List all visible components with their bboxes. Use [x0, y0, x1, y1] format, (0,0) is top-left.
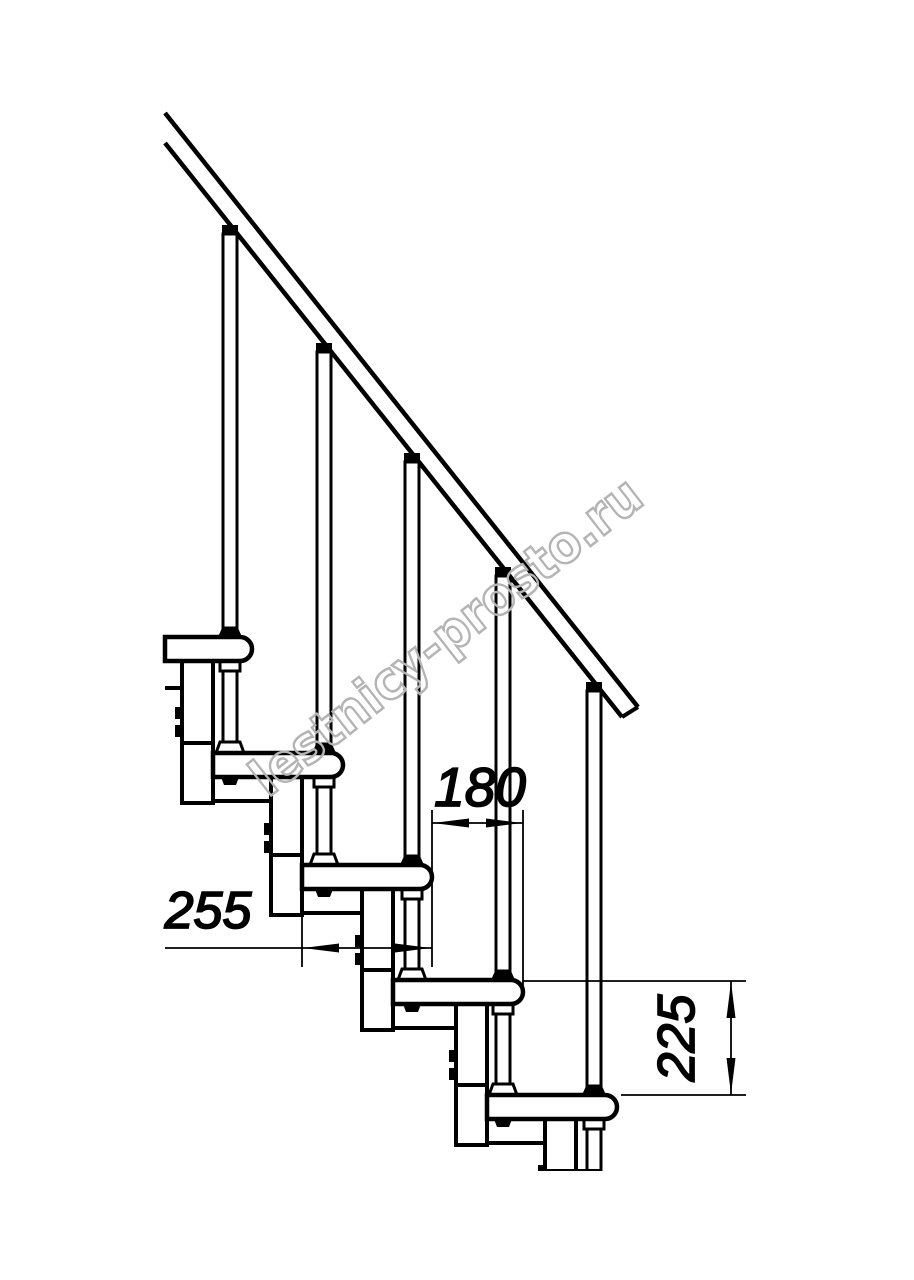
technical-drawing-canvas: 255 180 225 lestnicy-prosto.ru: [0, 0, 914, 1280]
dimension-label-255: 255: [164, 882, 253, 940]
arrowhead-left: [303, 944, 339, 953]
dimension-180: 180: [432, 756, 526, 988]
tread-1: [165, 637, 252, 661]
tread-3: [302, 865, 432, 889]
tread-4: [393, 980, 523, 1004]
support-tube-1: [216, 661, 244, 753]
dimension-225: 225: [523, 981, 746, 1095]
arrowhead-up: [727, 982, 736, 1018]
support-tube-3: [398, 889, 426, 980]
staircase-drawing: 255 180 225 lestnicy-prosto.ru: [0, 0, 914, 1280]
baluster-1: [218, 225, 242, 637]
dimension-label-180: 180: [434, 756, 526, 818]
arrowhead-down: [727, 1058, 736, 1094]
tread-5: [487, 1095, 617, 1119]
baluster-5: [582, 682, 606, 1095]
bolt-under-tread-4: [403, 1004, 421, 1012]
support-tube-5-cut: [584, 1119, 604, 1171]
bolt-under-tread-2: [221, 777, 239, 785]
support-tube-2: [310, 777, 338, 865]
dimension-label-225: 225: [648, 994, 706, 1083]
bolt-under-tread-3: [315, 889, 333, 897]
support-tube-4: [489, 1004, 517, 1095]
bolt-under-tread-5: [494, 1119, 512, 1127]
arrowhead-left: [433, 819, 469, 828]
